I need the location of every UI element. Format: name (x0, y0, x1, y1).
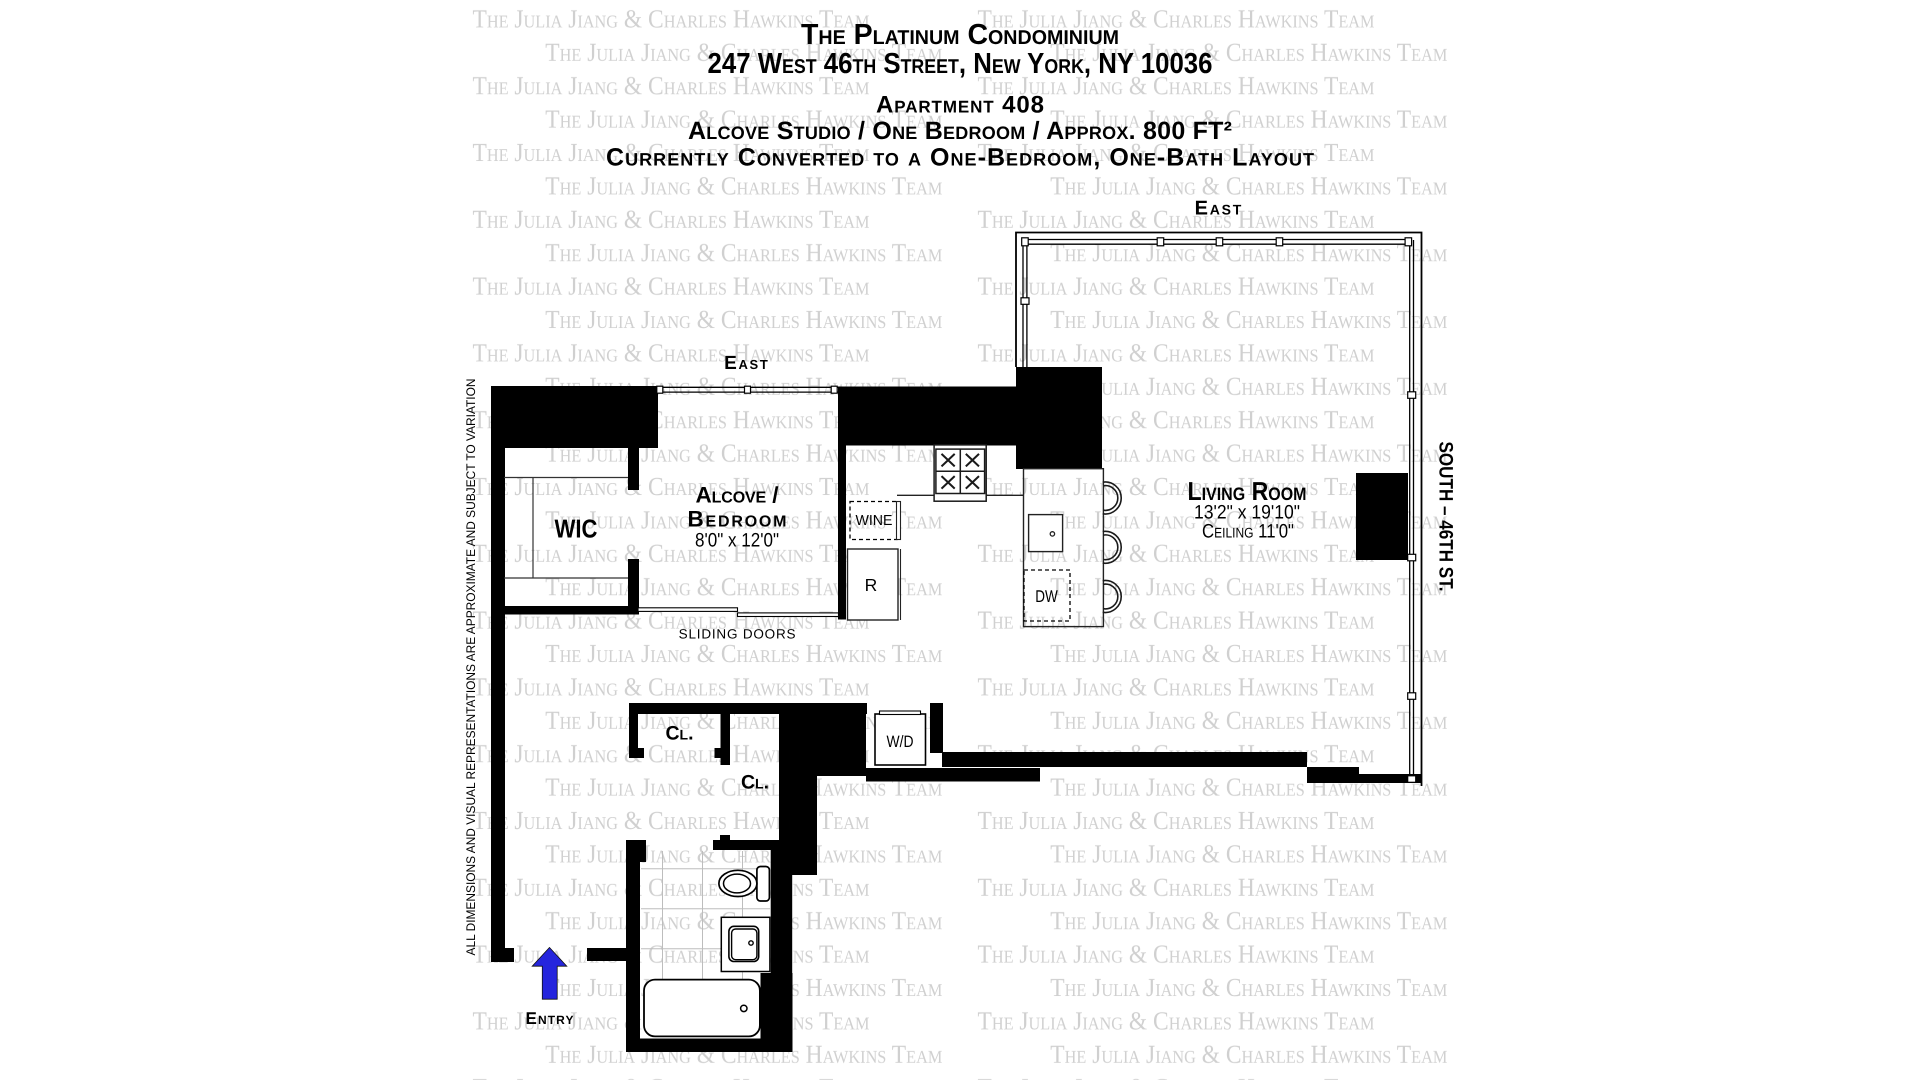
svg-text:The Platinum Condominium: The Platinum Condominium (801, 19, 1119, 51)
svg-text:WINE: WINE (856, 513, 893, 529)
svg-text:DW: DW (1035, 587, 1058, 606)
svg-text:Currently Converted to a One-B: Currently Converted to a One-Bedroom, On… (606, 144, 1314, 172)
svg-text:R: R (865, 575, 878, 595)
svg-text:Bedroom: Bedroom (688, 507, 787, 532)
svg-text:WIC: WIC (555, 514, 598, 544)
svg-text:East: East (724, 353, 768, 374)
svg-text:Entry: Entry (526, 1009, 574, 1028)
svg-text:Apartment 408: Apartment 408 (876, 92, 1044, 119)
svg-text:Alcove /: Alcove / (696, 483, 780, 508)
svg-text:Cl.: Cl. (741, 772, 769, 794)
svg-text:SOUTH – 46TH ST.: SOUTH – 46TH ST. (1435, 442, 1457, 592)
svg-text:Alcove Studio / One Bedroom /: Alcove Studio / One Bedroom / Approx. 80… (688, 117, 1232, 145)
svg-text:Cl.: Cl. (665, 723, 693, 745)
svg-text:East: East (1195, 197, 1242, 219)
svg-text:247 West 46th Street, New York: 247 West 46th Street, New York, NY 10036 (708, 48, 1213, 80)
svg-text:Ceiling 11'0": Ceiling 11'0" (1202, 521, 1294, 543)
svg-text:SLIDING DOORS: SLIDING DOORS (679, 627, 797, 642)
svg-text:ALL DIMENSIONS AND VISUAL REPR: ALL DIMENSIONS AND VISUAL REPRESENTATION… (464, 379, 478, 956)
svg-text:W/D: W/D (887, 733, 914, 751)
svg-text:8'0" x 12'0": 8'0" x 12'0" (695, 530, 779, 552)
